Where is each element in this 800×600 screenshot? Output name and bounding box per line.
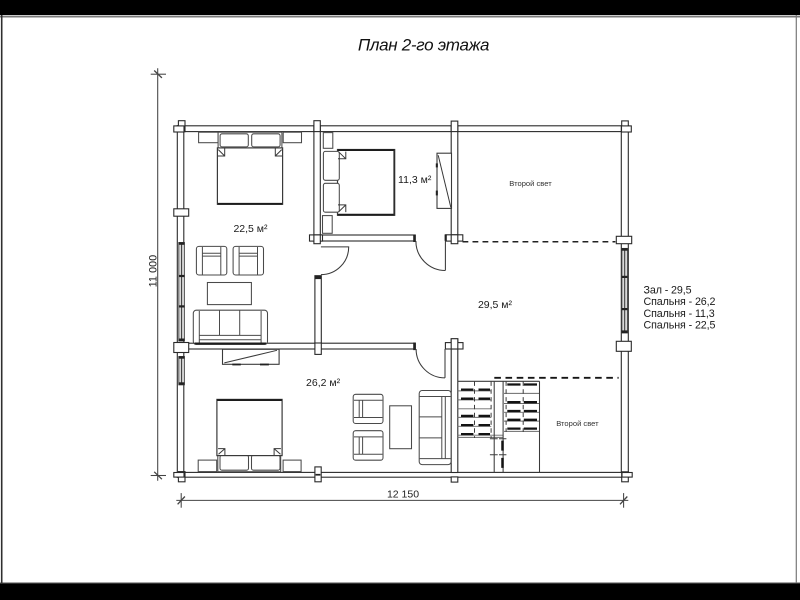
svg-text:Спальня - 22,5: Спальня - 22,5 (644, 320, 716, 332)
svg-text:Второй свет: Второй свет (556, 419, 599, 428)
svg-text:Второй свет: Второй свет (509, 179, 552, 188)
svg-text:11,3 м²: 11,3 м² (398, 174, 432, 186)
svg-text:22,5 м²: 22,5 м² (233, 223, 268, 235)
svg-text:Зал - 29,5: Зал - 29,5 (644, 285, 692, 297)
svg-text:26,2 м²: 26,2 м² (306, 377, 341, 389)
svg-text:Спальня - 11,3: Спальня - 11,3 (644, 308, 715, 320)
svg-text:12 150: 12 150 (387, 489, 419, 501)
svg-text:11 000: 11 000 (148, 255, 160, 288)
svg-text:Спальня - 26,2: Спальня - 26,2 (644, 296, 716, 308)
svg-text:План 2-го этажа: План 2-го этажа (358, 35, 489, 54)
svg-text:29,5 м²: 29,5 м² (478, 299, 513, 311)
